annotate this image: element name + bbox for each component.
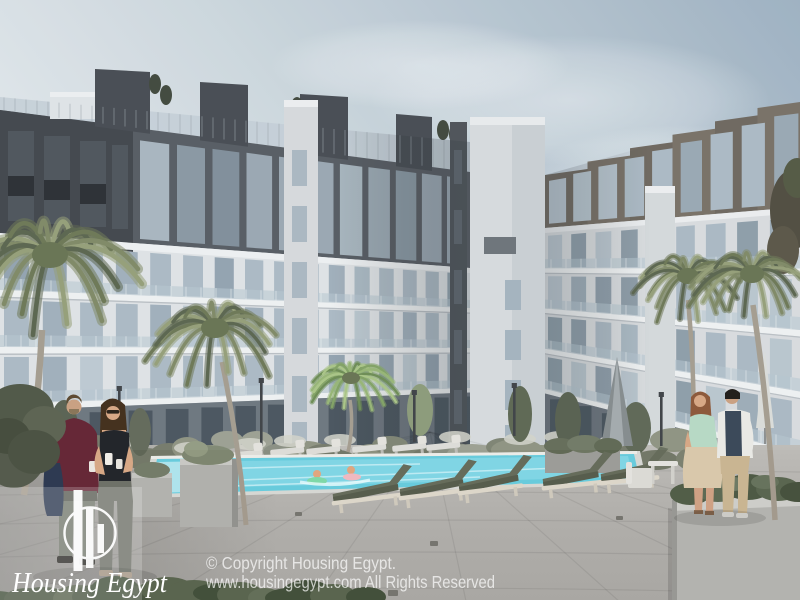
svg-text:© Copyright Housing Egypt.: © Copyright Housing Egypt. [206, 553, 396, 573]
svg-text:Housing Egypt: Housing Egypt [11, 568, 168, 599]
svg-text:www.housingegypt.com All Right: www.housingegypt.com All Rights Reserved [205, 572, 495, 592]
